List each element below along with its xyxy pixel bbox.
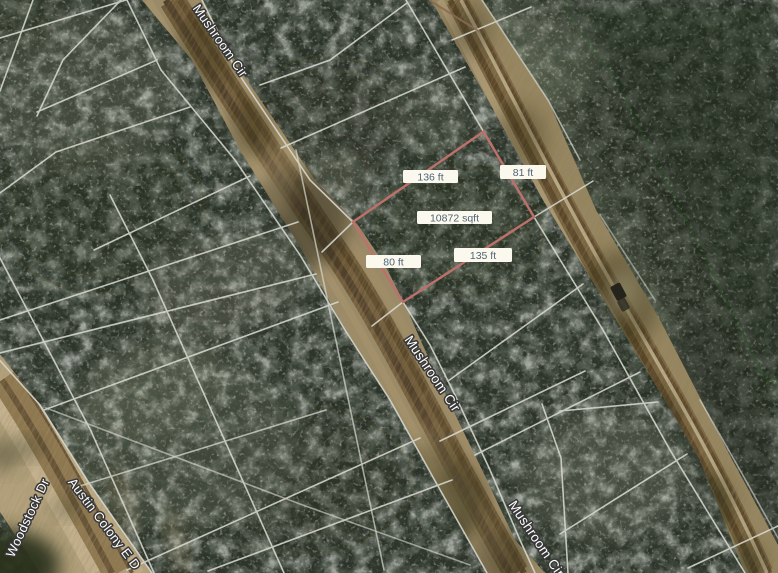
svg-text:80 ft: 80 ft [383, 257, 404, 269]
svg-text:81 ft: 81 ft [513, 167, 534, 179]
svg-text:10872 sqft: 10872 sqft [430, 213, 479, 225]
svg-text:135 ft: 135 ft [470, 250, 496, 262]
svg-text:136 ft: 136 ft [417, 172, 443, 184]
